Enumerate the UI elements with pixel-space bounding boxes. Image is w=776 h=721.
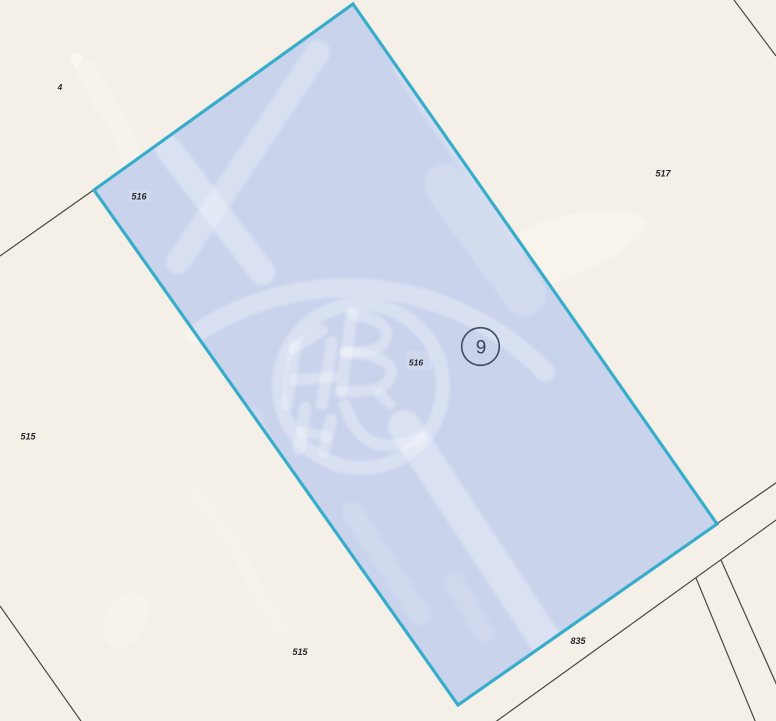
svg-text:4: 4 [57,83,63,92]
svg-text:515: 515 [20,432,36,442]
svg-text:516: 516 [131,192,147,202]
svg-text:515: 515 [292,647,308,657]
svg-text:9: 9 [476,338,487,359]
svg-text:516: 516 [409,358,423,368]
svg-text:517: 517 [655,169,671,179]
svg-text:835: 835 [570,636,586,646]
